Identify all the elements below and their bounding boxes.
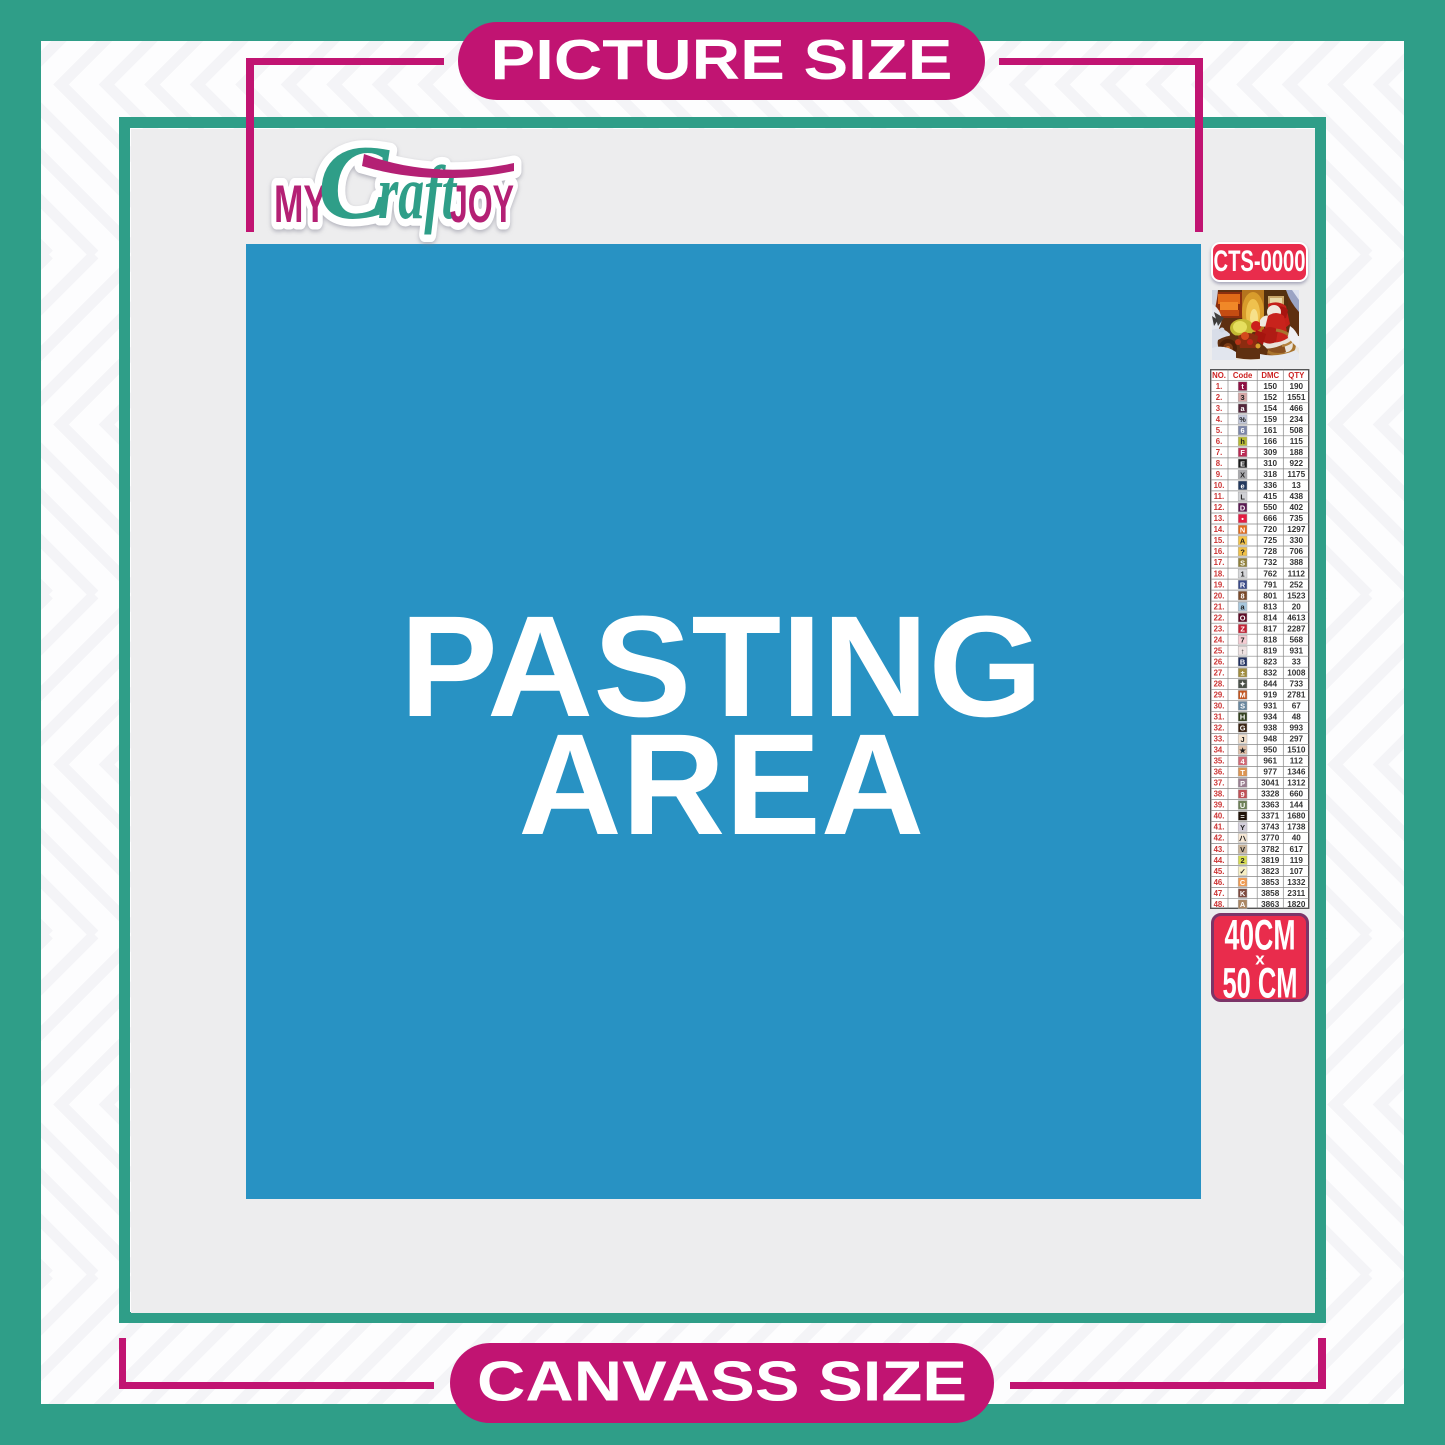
svg-text:3743: 3743 [1261,822,1280,831]
svg-text:1551: 1551 [1287,392,1306,401]
svg-text:318: 318 [1263,470,1277,479]
svg-text:950: 950 [1263,745,1277,754]
svg-text:1738: 1738 [1287,822,1306,831]
svg-text:16.: 16. [1214,547,1225,556]
svg-text:3041: 3041 [1261,778,1280,787]
svg-text:993: 993 [1289,723,1303,732]
svg-text:508: 508 [1289,426,1303,435]
svg-text:832: 832 [1263,668,1277,677]
svg-text:e: e [1241,481,1245,490]
svg-text:24.: 24. [1214,635,1225,644]
svg-text:159: 159 [1263,415,1277,424]
svg-text:550: 550 [1263,503,1277,512]
svg-text:PICTURE SIZE: PICTURE SIZE [490,28,952,92]
svg-text:32.: 32. [1214,723,1225,732]
svg-text:161: 161 [1263,426,1277,435]
svg-text:N: N [1240,525,1245,534]
svg-text:725: 725 [1263,536,1277,545]
svg-text:?: ? [1240,547,1245,556]
svg-text:ハ: ハ [1239,833,1247,842]
svg-text:±: ± [1241,668,1245,677]
svg-text:931: 931 [1263,701,1277,710]
svg-text:6: 6 [1241,426,1245,435]
svg-text:4613: 4613 [1287,613,1306,622]
svg-text:A: A [1240,536,1246,545]
svg-text:733: 733 [1289,679,1303,688]
svg-text:3770: 3770 [1261,833,1280,842]
svg-text:3858: 3858 [1261,888,1280,897]
svg-text:732: 732 [1263,558,1277,567]
svg-text:310: 310 [1263,459,1277,468]
svg-text:8.: 8. [1216,459,1223,468]
svg-text:40.: 40. [1214,811,1225,820]
svg-text:791: 791 [1263,580,1277,589]
svg-text:11.: 11. [1214,492,1224,501]
svg-text:20: 20 [1292,602,1302,611]
svg-text:QTY: QTY [1288,370,1305,379]
svg-text:5.: 5. [1216,426,1223,435]
svg-text:C: C [1240,878,1246,887]
svg-text:801: 801 [1263,591,1277,600]
svg-text:10.: 10. [1214,481,1225,490]
svg-text:L: L [1240,492,1245,501]
svg-text:33.: 33. [1214,734,1225,743]
svg-text:977: 977 [1263,767,1277,776]
svg-text:48.: 48. [1214,899,1225,908]
svg-text:823: 823 [1263,657,1277,666]
svg-text:25.: 25. [1214,646,1225,655]
svg-text:1297: 1297 [1287,525,1306,534]
svg-text:1680: 1680 [1287,811,1306,820]
svg-text:CTS-0000: CTS-0000 [1213,245,1305,278]
svg-text:3: 3 [1241,393,1245,402]
svg-text:735: 735 [1289,514,1303,523]
svg-text:234: 234 [1289,415,1303,424]
svg-text:%: % [1239,415,1246,424]
svg-text:107: 107 [1289,866,1303,875]
svg-text:20.: 20. [1214,591,1225,600]
svg-text:762: 762 [1263,569,1277,578]
svg-text:119: 119 [1290,855,1304,864]
svg-text:3823: 3823 [1261,866,1280,875]
svg-text:17.: 17. [1214,558,1225,567]
svg-text:9.: 9. [1216,470,1223,479]
svg-text:2781: 2781 [1287,690,1306,699]
svg-text:46.: 46. [1214,877,1225,886]
svg-text:706: 706 [1289,547,1303,556]
svg-text:819: 819 [1263,646,1277,655]
svg-text:44.: 44. [1214,855,1225,864]
svg-text:19.: 19. [1214,580,1225,589]
svg-text:3371: 3371 [1261,811,1280,820]
svg-text:2287: 2287 [1287,624,1306,633]
svg-text:438: 438 [1289,492,1303,501]
svg-text:V: V [1240,845,1245,854]
svg-text:1510: 1510 [1287,745,1306,754]
svg-text:E: E [1240,459,1245,468]
svg-text:402: 402 [1289,503,1303,512]
svg-text:2: 2 [1241,856,1245,865]
svg-text:336: 336 [1263,481,1277,490]
svg-text:1: 1 [1241,569,1245,578]
svg-text:36.: 36. [1214,767,1225,776]
svg-text:330: 330 [1289,536,1303,545]
svg-text:DMC: DMC [1261,370,1279,379]
svg-text:190: 190 [1289,381,1303,390]
svg-text:568: 568 [1289,635,1303,644]
svg-text:O: O [1240,613,1246,622]
svg-text:34.: 34. [1214,745,1225,754]
svg-text:150: 150 [1263,381,1277,390]
svg-text:67: 67 [1292,701,1302,710]
svg-text:22.: 22. [1214,613,1225,622]
svg-text:42.: 42. [1214,833,1225,842]
svg-text:3328: 3328 [1261,789,1280,798]
svg-text:7: 7 [1241,635,1245,644]
svg-text:1175: 1175 [1287,470,1305,479]
svg-text:13.: 13. [1214,514,1225,523]
svg-text:922: 922 [1289,459,1303,468]
svg-text:720: 720 [1263,525,1277,534]
svg-text:154: 154 [1263,404,1277,413]
svg-text:919: 919 [1263,690,1277,699]
svg-text:•: • [1241,514,1244,523]
svg-text:112: 112 [1290,756,1304,765]
svg-text:F: F [1240,448,1245,457]
svg-text:39.: 39. [1214,800,1225,809]
svg-text:466: 466 [1289,404,1303,413]
svg-text:JOY: JOY [450,175,514,234]
svg-text:★: ★ [1238,745,1246,754]
svg-text:152: 152 [1263,392,1277,401]
svg-text:4.: 4. [1216,415,1223,424]
svg-text:M: M [1240,690,1246,699]
svg-text:50 CM: 50 CM [1222,959,1297,1002]
svg-text:18.: 18. [1214,569,1225,578]
svg-text:297: 297 [1289,734,1303,743]
svg-text:D: D [1240,503,1246,512]
svg-text:166: 166 [1263,437,1277,446]
svg-text:813: 813 [1263,602,1277,611]
svg-text:31.: 31. [1214,712,1225,721]
svg-text:252: 252 [1289,580,1303,589]
svg-text:309: 309 [1263,448,1277,457]
svg-text:26.: 26. [1214,657,1225,666]
svg-text:931: 931 [1289,646,1303,655]
svg-text:P: P [1240,778,1245,787]
svg-text:AREA: AREA [518,704,924,865]
svg-text:Y: Y [1240,822,1245,831]
svg-text:41.: 41. [1214,822,1225,831]
svg-text:21.: 21. [1214,602,1225,611]
svg-text:938: 938 [1263,723,1277,732]
svg-text:2.: 2. [1216,392,1223,401]
svg-text:R: R [1240,580,1246,589]
svg-text:↑: ↑ [1241,646,1245,655]
svg-text:29.: 29. [1214,690,1225,699]
svg-text:1523: 1523 [1287,591,1306,600]
svg-text:43.: 43. [1214,844,1225,853]
svg-text:h: h [1240,437,1245,446]
svg-text:1112: 1112 [1288,569,1306,578]
svg-text:8: 8 [1241,591,1245,600]
svg-text:144: 144 [1289,800,1303,809]
svg-text:J: J [1241,734,1245,743]
svg-text:817: 817 [1263,624,1277,633]
svg-text:✦: ✦ [1239,679,1245,688]
svg-text:617: 617 [1289,844,1303,853]
svg-text:Z: Z [1240,624,1245,633]
svg-text:188: 188 [1289,448,1303,457]
svg-text:H: H [1240,712,1245,721]
svg-text:40: 40 [1292,833,1302,842]
svg-text:T: T [1240,767,1245,776]
svg-text:S: S [1240,701,1245,710]
svg-text:728: 728 [1263,547,1277,556]
svg-text:48: 48 [1292,712,1302,721]
svg-text:X: X [1240,470,1245,479]
svg-text:✓: ✓ [1239,867,1245,876]
svg-text:3782: 3782 [1261,844,1280,853]
svg-text:37.: 37. [1214,778,1225,787]
svg-text:14.: 14. [1214,525,1225,534]
svg-text:3819: 3819 [1261,855,1280,864]
svg-text:2311: 2311 [1287,888,1305,897]
svg-text:CANVASS SIZE: CANVASS SIZE [477,1349,967,1413]
svg-text:666: 666 [1263,514,1277,523]
svg-text:1008: 1008 [1287,668,1306,677]
svg-text:1346: 1346 [1287,767,1306,776]
svg-text:844: 844 [1263,679,1277,688]
svg-text:7.: 7. [1216,448,1223,457]
svg-text:3853: 3853 [1261,877,1280,886]
svg-text:415: 415 [1263,492,1277,501]
svg-text:115: 115 [1290,437,1304,446]
svg-text:1332: 1332 [1287,877,1306,886]
svg-text:NO.: NO. [1212,370,1226,379]
svg-text:1312: 1312 [1287,778,1306,787]
svg-text:6.: 6. [1216,437,1223,446]
svg-text:K: K [1240,889,1246,898]
svg-text:818: 818 [1263,635,1277,644]
svg-text:27.: 27. [1214,668,1225,677]
svg-text:9: 9 [1241,789,1245,798]
svg-text:1.: 1. [1216,381,1223,390]
svg-text:45.: 45. [1214,866,1225,875]
svg-text:33: 33 [1292,657,1302,666]
svg-text:S: S [1240,558,1245,567]
svg-text:Code: Code [1233,370,1253,379]
svg-text:G: G [1240,723,1246,732]
svg-text:3363: 3363 [1261,800,1280,809]
svg-text:U: U [1240,800,1245,809]
svg-text:28.: 28. [1214,679,1225,688]
svg-text:15.: 15. [1214,536,1225,545]
svg-text:47.: 47. [1214,888,1225,897]
svg-text:934: 934 [1263,712,1277,721]
svg-text:948: 948 [1263,734,1277,743]
svg-text:388: 388 [1289,558,1303,567]
svg-text:B: B [1240,657,1245,666]
svg-text:A: A [1240,900,1246,909]
svg-text:23.: 23. [1214,624,1225,633]
svg-text:38.: 38. [1214,789,1225,798]
svg-text:30.: 30. [1214,701,1225,710]
svg-text:3.: 3. [1216,404,1223,413]
svg-text:13: 13 [1292,481,1302,490]
svg-text:35.: 35. [1214,756,1225,765]
svg-text:3863: 3863 [1261,899,1280,908]
svg-text:=: = [1240,811,1245,820]
svg-text:961: 961 [1263,756,1277,765]
svg-text:1820: 1820 [1287,899,1306,908]
svg-text:12.: 12. [1214,503,1225,512]
svg-text:660: 660 [1289,789,1303,798]
svg-text:814: 814 [1263,613,1277,622]
